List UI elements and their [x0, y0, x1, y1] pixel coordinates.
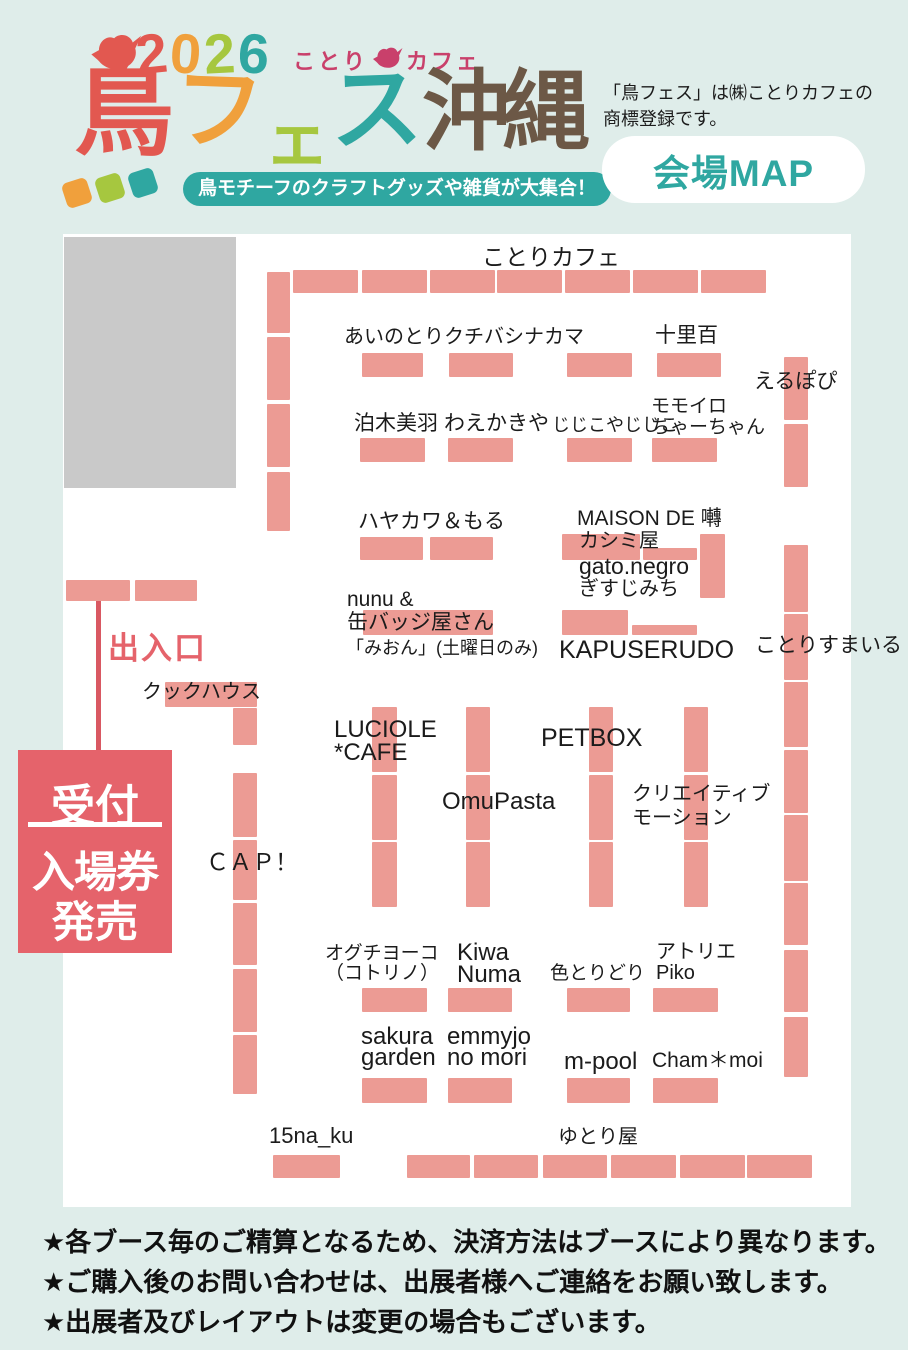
event-title: 鳥フェス沖縄 [74, 62, 582, 172]
reception-box: 受付 入場券 発売 [18, 750, 172, 953]
vendor-label-kukku-house: クックハウス [142, 681, 261, 704]
booth [430, 537, 493, 560]
booth [448, 438, 513, 462]
vendor-label-line: ゆとり屋 [558, 1126, 638, 1149]
booth [273, 1155, 340, 1178]
footer-note: ★出展者及びレイアウトは変更の場合もございます。 [42, 1302, 891, 1342]
title-diamond [94, 172, 127, 205]
vendor-label-emmyjo-no-mori: emmyjono mori [447, 1026, 531, 1068]
trademark-line-1: 「鳥フェス」は㈱ことりカフェの [603, 80, 873, 106]
booth [784, 750, 808, 813]
vendor-label-line: Piko [656, 963, 736, 984]
vendor-label-line: gato.negro [579, 553, 689, 579]
vendor-label-line: Numa [457, 964, 521, 986]
booth [466, 842, 490, 907]
title-diamond [61, 177, 94, 210]
entrance-bar [66, 580, 130, 601]
booth [362, 270, 427, 293]
vendor-label-15na-ku: 15na_ku [269, 1123, 353, 1148]
booth [407, 1155, 470, 1178]
booth [567, 438, 632, 462]
booth [267, 272, 290, 333]
vendor-label-line: nunu & [347, 588, 494, 611]
vendor-label-line: えるぽぴ [754, 370, 837, 394]
booth [567, 353, 632, 377]
booth [680, 1155, 745, 1178]
vendor-label-line: 色とりどり [550, 963, 645, 985]
booth [784, 950, 808, 1012]
booth [233, 773, 257, 837]
booth [684, 842, 708, 907]
vendor-label-line: LUCIOLE [334, 718, 437, 741]
vendor-label-mion-saturday-only: 「みおん」(土曜日のみ) [346, 638, 538, 659]
title-char: ェ [264, 106, 330, 172]
booth [684, 707, 708, 772]
booth [784, 545, 808, 612]
footer-note: ★ご購入後のお問い合わせは、出展者様へご連絡をお願い致します。 [42, 1262, 891, 1302]
booth [784, 883, 808, 945]
vendor-label-sakura-garden: sakuragarden [361, 1026, 436, 1068]
vendor-label-ainotori-kuchibashinakama: あいのとりクチバシナカマ [344, 326, 584, 349]
entrance-bar [135, 580, 197, 601]
booth [567, 988, 630, 1012]
booth [652, 438, 717, 462]
vendor-label-line: ことりすまいる [755, 634, 902, 658]
vendor-label-line: ことりカフェ [482, 244, 620, 270]
vendor-label-kotori-cafe: ことりカフェ [482, 244, 620, 270]
vendor-label-kotorisumairu: ことりすまいる [755, 634, 902, 658]
vendor-label-kashimiya: カシミ屋 [579, 530, 659, 553]
vendor-label-line: モモイロ [651, 396, 765, 417]
booth [360, 438, 425, 462]
vendor-label-hayakawa-moru: ハヤカワ＆もる [358, 510, 505, 534]
gray-area [64, 237, 236, 488]
vendor-label-line: ちゃーちゃん [651, 417, 765, 438]
ticket-sales-line-2: 発売 [18, 888, 172, 950]
booth [589, 842, 613, 907]
vendor-label-gato-negro: gato.negro [579, 553, 689, 579]
booth [362, 988, 427, 1012]
title-char: ス [328, 62, 423, 157]
vendor-label-line: OmuPasta [442, 788, 555, 815]
vendor-label-cham-moi: Cham＊moi [652, 1049, 763, 1073]
booth [448, 988, 512, 1012]
booth [233, 903, 257, 965]
booth [497, 270, 562, 293]
vendor-label-momoiro-chaachan: モモイロちゃーちゃん [651, 396, 765, 438]
vendor-label-line: 十里百 [655, 324, 718, 348]
vendor-label-line: *CAFE [334, 741, 437, 764]
booth [700, 534, 725, 598]
vendor-label-line: KAPUSERUDO [559, 636, 734, 664]
vendor-label-line: クリエイティブ [632, 782, 770, 806]
vendor-label-kiwa-numa: KiwaNuma [457, 942, 521, 986]
vendor-label-line: Cham＊moi [652, 1049, 763, 1073]
reception-divider [28, 822, 162, 827]
vendor-label-yutoriya: ゆとり屋 [558, 1126, 638, 1149]
booth [657, 353, 721, 377]
booth [362, 353, 423, 377]
vendor-label-line: m-pool [564, 1048, 637, 1075]
booth [267, 472, 290, 531]
booth [372, 775, 397, 840]
booth [449, 353, 513, 377]
vendor-label-oguchi-yoko-kotorino: オグチヨーコ（コトリノ） [325, 944, 439, 984]
booth [233, 1035, 257, 1094]
vendor-label-line: モーション [632, 806, 770, 830]
vendor-label-atelier-piko: アトリエPiko [656, 942, 736, 984]
vendor-label-luciole-cafe: LUCIOLE*CAFE [334, 718, 437, 764]
footer-notes: ★各ブース毎のご精算となるため、決済方法はブースにより異なります。★ご購入後のお… [42, 1222, 891, 1342]
booth [653, 1078, 718, 1103]
booth [562, 610, 628, 635]
booth [448, 1078, 512, 1103]
booth [653, 988, 718, 1012]
vendor-label-line: アトリエ [656, 942, 736, 963]
booth [567, 1078, 630, 1103]
vendor-label-line: MAISON DE 囀 [577, 507, 722, 531]
vendor-label-line: 缶バッジ屋さん [347, 611, 494, 634]
entrance-label: 出入口 [108, 623, 207, 668]
title-char: 沖縄 [422, 68, 582, 156]
footer-note: ★各ブース毎のご精算となるため、決済方法はブースにより異なります。 [42, 1222, 891, 1262]
booth [233, 708, 257, 745]
vendor-label-line: クックハウス [142, 681, 261, 704]
vendor-label-line: 「みおん」(土曜日のみ) [346, 638, 538, 659]
title-char: 鳥 [74, 62, 174, 162]
booth [372, 842, 397, 907]
vendor-label-kapuserudo: KAPUSERUDO [559, 636, 734, 664]
booth [611, 1155, 676, 1178]
trademark-note: 「鳥フェス」は㈱ことりカフェの 商標登録です。 [603, 80, 873, 132]
booth [784, 815, 808, 881]
booth [466, 707, 490, 772]
vendor-label-line: あいのとりクチバシナカマ [344, 326, 584, 349]
booth [362, 1078, 427, 1103]
vendor-label-tomarigi-miu: 泊木美羽 [354, 412, 438, 436]
vendor-label-line: 泊木美羽 [354, 412, 438, 436]
vendor-label-m-pool: m-pool [564, 1048, 637, 1075]
tagline-banner: 鳥モチーフのクラフトグッズや雑貨が大集合！ [183, 172, 611, 206]
booth [233, 969, 257, 1032]
vendor-label-line: ぎすじみち [579, 578, 679, 601]
booth [267, 404, 290, 467]
vendor-label-line: ハヤカワ＆もる [358, 510, 505, 534]
vendor-label-irotoridori: 色とりどり [550, 963, 645, 985]
trademark-line-2: 商標登録です。 [603, 106, 873, 132]
vendor-label-line: garden [361, 1047, 436, 1068]
booth [589, 775, 613, 840]
booth [430, 270, 495, 293]
booth [565, 270, 630, 293]
vendor-label-line: no mori [447, 1047, 531, 1068]
booth [784, 1017, 808, 1077]
vendor-label-jurihyaku: 十里百 [655, 324, 718, 348]
booth [633, 270, 698, 293]
booth [747, 1155, 812, 1178]
vendor-label-erupopi: えるぽぴ [754, 370, 837, 394]
title-char: フ [172, 64, 265, 157]
booth [474, 1155, 538, 1178]
vendor-label-maison-de-saezuri: MAISON DE 囀 [577, 507, 722, 531]
booth [293, 270, 358, 293]
vendor-label-line: ＣＡＰ！ [206, 849, 298, 875]
vendor-label-omupasta: OmuPasta [442, 788, 555, 815]
vendor-label-cap: ＣＡＰ！ [206, 849, 298, 875]
booth [360, 537, 423, 560]
entrance-line [96, 601, 101, 750]
vendor-label-waekakiya: わえかきや [444, 412, 549, 436]
vendor-label-line: オグチヨーコ [325, 944, 439, 964]
vendor-label-creative-motion: クリエイティブモーション [632, 782, 770, 830]
booth [784, 424, 808, 487]
vendor-label-line: わえかきや [444, 412, 549, 436]
booth [632, 625, 697, 635]
booth [784, 682, 808, 747]
vendor-label-nunu-kanbadge: nunu &缶バッジ屋さん [347, 588, 494, 634]
vendor-label-line: （コトリノ） [325, 964, 439, 984]
venue-map-button-label: 会場MAP [653, 143, 814, 197]
vendor-label-line: 15na_ku [269, 1123, 353, 1148]
booth [701, 270, 766, 293]
vendor-label-petbox: PETBOX [541, 724, 642, 752]
vendor-label-gisujimichi: ぎすじみち [579, 578, 679, 601]
vendor-label-line: PETBOX [541, 724, 642, 752]
booth [267, 337, 290, 400]
vendor-label-line: カシミ屋 [579, 530, 659, 553]
event-map-poster: 2026 ことり カフェ 鳥フェス沖縄 鳥モチーフのクラフトグッズや雑貨が大集合… [0, 0, 908, 1350]
booth [543, 1155, 607, 1178]
venue-map-button[interactable]: 会場MAP [602, 136, 865, 203]
